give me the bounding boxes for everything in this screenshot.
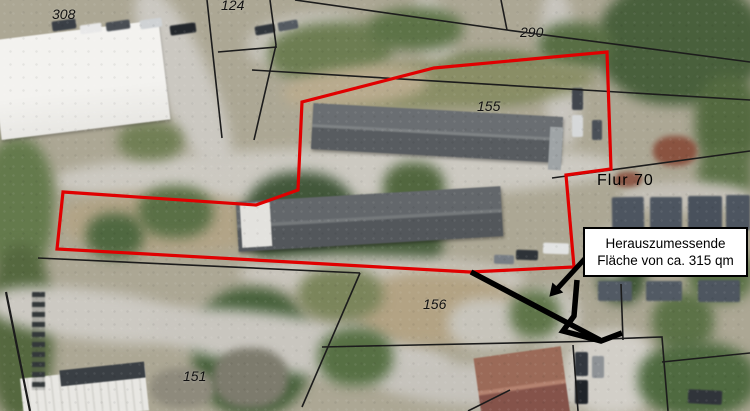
vehicle-or-roof-patch bbox=[688, 389, 723, 405]
vehicle-or-roof-patch bbox=[277, 19, 298, 31]
vehicle-or-roof-patch bbox=[494, 255, 514, 265]
parked-cars bbox=[0, 0, 750, 411]
measurement-callout-box: Herauszumessende Fläche von ca. 315 qm bbox=[583, 227, 748, 277]
callout-text-line2: Fläche von ca. 315 qm bbox=[585, 252, 746, 269]
vehicle-or-roof-patch bbox=[592, 120, 602, 140]
vehicle-or-roof-patch bbox=[79, 23, 102, 35]
vehicle-or-roof-patch bbox=[572, 115, 583, 137]
vehicle-or-roof-patch bbox=[105, 19, 130, 31]
vehicle-or-roof-patch bbox=[575, 352, 588, 376]
parcel-label-151: 151 bbox=[183, 368, 206, 384]
parcel-label-124: 124 bbox=[221, 0, 244, 13]
vehicle-or-roof-patch bbox=[543, 243, 569, 255]
parcel-label-308: 308 bbox=[52, 6, 75, 22]
callout-text-line1: Herauszumessende bbox=[585, 235, 746, 252]
vehicle-or-roof-patch bbox=[592, 356, 604, 378]
vehicle-or-roof-patch bbox=[139, 18, 162, 30]
parcel-label-156: 156 bbox=[423, 296, 446, 312]
flur-label: Flur 70 bbox=[597, 172, 654, 190]
lattice-mast bbox=[32, 292, 45, 390]
vehicle-or-roof-patch bbox=[254, 23, 275, 35]
vehicle-or-roof-patch bbox=[516, 250, 538, 261]
vehicle-or-roof-patch bbox=[169, 22, 196, 36]
vehicle-or-roof-patch bbox=[572, 88, 583, 110]
vehicle-or-roof-patch bbox=[575, 380, 588, 404]
parcel-label-155: 155 bbox=[477, 98, 500, 114]
aerial-cadastral-map: 308 124 290 155 156 151 Flur 70 Herauszu… bbox=[0, 0, 750, 411]
parcel-label-290: 290 bbox=[520, 24, 543, 40]
